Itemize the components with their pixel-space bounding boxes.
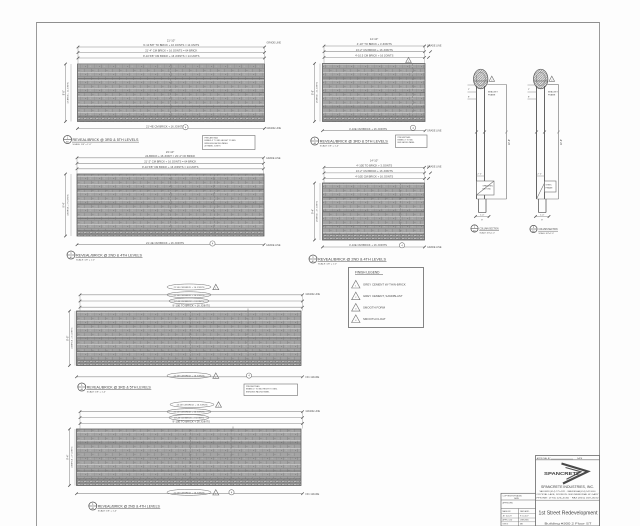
svg-text:VALDERS (414) 775-4121 · WAUKE: VALDERS (414) 775-4121 · WAUKESHA (414) … [540,490,596,493]
svg-text:GRADE LINE: GRADE LINE [427,166,442,169]
svg-text:2" 2": 2" 2" [478,174,482,176]
svg-text:16'-4E CM BRICK + 3 JOINTS: 16'-4E CM BRICK + 3 JOINTS [174,418,204,420]
svg-text:22'-8": 22'-8" [508,139,511,145]
svg-text:GRADE LINE: GRADE LINE [266,244,281,247]
svg-text:BRACKET: BRACKET [488,91,499,94]
svg-text:GRADE LINE: GRADE LINE [306,410,321,413]
svg-text:BRACKET: BRACKET [548,91,559,94]
svg-text:REVEAL/BRICK @ 3RD & 5TH LEVEL: REVEAL/BRICK @ 3RD & 5TH LEVELS [320,139,388,143]
svg-text:SCALE: 1/8" = 1'-0": SCALE: 1/8" = 1'-0" [98,510,117,513]
svg-text:GREY CEMENT W/ THIN-BRICK: GREY CEMENT W/ THIN-BRICK [363,282,406,286]
svg-text:4'-10" TO BRICK + 3 JOINTS: 4'-10" TO BRICK + 3 JOINTS [357,42,392,46]
svg-text:SMOOTH FLOAT: SMOOTH FLOAT [363,317,386,321]
svg-text:DATE: DATE [577,457,583,460]
svg-text:FRAME: FRAME [546,186,554,189]
svg-text:SMOOTH FORM: SMOOTH FORM [363,306,386,310]
svg-text:2": 2" [528,89,530,91]
svg-text:SCALE: 3/4"=1'-0": SCALE: 3/4"=1'-0" [539,232,555,235]
svg-text:9'-4": 9'-4" [66,455,69,460]
svg-text:GREY CEMENT, SANDBLAST: GREY CEMENT, SANDBLAST [363,294,403,298]
svg-text:13'-2" CM BRICK + 16 JOINTS: 13'-2" CM BRICK + 16 JOINTS [356,169,393,173]
svg-text:REVEAL/BRICK @ 2ND & 4TH LEVEL: REVEAL/BRICK @ 2ND & 4TH LEVELS [318,257,386,261]
svg-text:4'-10E CM BRICK + 16 JOINTS: 4'-10E CM BRICK + 16 JOINTS [355,175,393,179]
svg-text:BRINGING FACING PANEL: BRINGING FACING PANEL [205,142,229,145]
svg-text:21'-4E CM BRICK + 16 JOINTS: 21'-4E CM BRICK + 16 JOINTS [174,295,205,297]
svg-text:FRAME: FRAME [548,93,556,96]
svg-text:14'-10": 14'-10" [370,159,378,163]
svg-text:GRADE LINE: GRADE LINE [427,45,442,48]
svg-text:APPROVED: APPROVED [503,502,514,505]
svg-text:STEEL: STEEL [546,185,553,187]
svg-text:SCALE: 3/4"=1'-0": SCALE: 3/4"=1'-0" [480,231,496,234]
svg-text:1'-0": 1'-0" [540,214,544,216]
svg-text:FIN. GRADE: FIN. GRADE [306,493,320,496]
svg-text:CHECKED: CHECKED [520,519,529,521]
svg-text:4'-10E CM BRICK + 16 JOINTS: 4'-10E CM BRICK + 16 JOINTS [349,243,387,247]
svg-text:8": 8" [481,219,483,221]
svg-text:(28 BRICK + 27 JOINTS): (28 BRICK + 27 JOINTS) [72,446,74,468]
svg-text:SPANDREL: SPANDREL [483,185,495,188]
svg-text:GRADE LINE: GRADE LINE [266,157,281,160]
svg-text:BRINGING FACING PANEL: BRINGING FACING PANEL [246,390,270,393]
svg-text:APPROVAL BY: APPROVAL BY [537,457,551,460]
svg-text:21'-4E CM BRICK + 16 JOINTS: 21'-4E CM BRICK + 16 JOINTS [146,241,184,245]
svg-text:CRYSTAL LAKE, DIVISION: 3049 M: CRYSTAL LAKE, DIVISION: 3049 MEMORIAL W.… [537,493,600,496]
svg-text:REVEAL/BRICK @ 3RD & 5TH LEVEL: REVEAL/BRICK @ 3RD & 5TH LEVELS [87,385,151,389]
svg-text:8'-8": 8'-8" [311,90,314,95]
svg-text:4'-10E CM BRICK + 16 JOINTS: 4'-10E CM BRICK + 16 JOINTS [349,127,387,131]
svg-text:21'-10": 21'-10" [167,39,175,43]
svg-text:GRADE LINE: GRADE LINE [306,293,321,296]
svg-text:9'-10 5/8" CM BRICK + 16 JOINT: 9'-10 5/8" CM BRICK + 16 JOINTS = 14 UNI… [142,165,199,169]
svg-text:24'-4E CM BRICK + 16 JOINTS: 24'-4E CM BRICK + 16 JOINTS [177,405,208,407]
svg-text:21'-2" CM BRICK + 16 JOINTS =: 21'-2" CM BRICK + 16 JOINTS = 64 BRICK [144,159,196,163]
svg-text:Building #300 2 Floor ST: Building #300 2 Floor ST [545,521,592,525]
svg-text:9'-4": 9'-4" [311,209,314,214]
svg-text:14'-10": 14'-10" [370,37,378,41]
svg-text:REVEAL/BRICK @ 3RD & 5TH LEVEL: REVEAL/BRICK @ 3RD & 5TH LEVELS [73,138,139,142]
svg-text:GRADE LINE: GRADE LINE [427,246,442,249]
svg-text:21'-4E CM BRICK + 16 JOINTS: 21'-4E CM BRICK + 16 JOINTS [174,287,205,289]
svg-text:21'-4E CM BRICK + 16 JOINTS: 21'-4E CM BRICK + 16 JOINTS [174,376,205,378]
svg-text:1st Street Redevelopment: 1st Street Redevelopment [539,510,598,516]
svg-text:FIN. GRADE: FIN. GRADE [306,376,320,379]
svg-text:EMBED 4" TO MID HEIGHT TO BED.: EMBED 4" TO MID HEIGHT TO BED. [205,140,237,142]
svg-text:R: 10-6-97: R: 10-6-97 [520,516,529,518]
svg-text:2": 2" [468,89,470,91]
svg-text:COLUMN SECTION: COLUMN SECTION [539,227,558,231]
svg-text:(28 BRICK + 27 JOINTS): (28 BRICK + 27 JOINTS) [317,201,319,223]
svg-text:JE: 10-5-97: JE: 10-5-97 [503,516,512,518]
svg-text:GRADE LINE: GRADE LINE [427,130,442,133]
svg-text:9'-10 5/8" TO BRICK + 16 JOINT: 9'-10 5/8" TO BRICK + 16 JOINTS = 14 UNI… [143,43,199,47]
svg-text:(26 BRICK + 25 JOINTS): (26 BRICK + 25 JOINTS) [317,82,319,104]
svg-text:8": 8" [468,97,470,99]
svg-text:21'-4E CM BRICK + 16 JOINTS: 21'-4E CM BRICK + 16 JOINTS [146,125,184,129]
svg-text:STR B:: STR B: [503,524,509,526]
svg-text:REVEAL/BRICK @ 2ND & 4TH LEVEL: REVEAL/BRICK @ 2ND & 4TH LEVELS [76,253,142,257]
svg-text:COLUMN SECTION: COLUMN SECTION [480,227,499,231]
svg-text:GRADE LINE: GRADE LINE [267,42,282,45]
svg-text:PHONE: (773) 126-4130 · FAX (8: PHONE: (773) 126-4130 · FAX (815) 459-05… [537,496,599,499]
svg-text:8'-8": 8'-8" [62,90,65,95]
svg-text:MADE BY:: MADE BY: [503,510,512,513]
svg-text:SCALE: 1/8" = 1'-0": SCALE: 1/8" = 1'-0" [76,259,95,262]
svg-text:SCALE: 1/8" = 1'-0": SCALE: 1/8" = 1'-0" [320,145,339,148]
svg-text:FINISH LEGEND: FINISH LEGEND [355,271,380,275]
svg-text:GRADE LINE: GRADE LINE [267,127,282,130]
svg-text:8": 8" [528,97,530,99]
svg-text:13'-2" CM BRICK + 16 JOINTS: 13'-2" CM BRICK + 16 JOINTS [356,48,393,52]
svg-text:REVEAL/BRICK @ 2ND & 4TH LEVEL: REVEAL/BRICK @ 2ND & 4TH LEVELS [98,504,160,508]
svg-text:9'-10 5/8" CM BRICK + 16 JOINT: 9'-10 5/8" CM BRICK + 16 JOINTS = 14 UNI… [143,54,200,58]
svg-text:4'-10E TO BRICK + 3 JOINTS: 4'-10E TO BRICK + 3 JOINTS [356,163,392,167]
svg-text:PRECAST/SAG: PRECAST/SAG [246,385,260,388]
svg-text:PRECAST/SAG: PRECAST/SAG [398,136,411,139]
svg-text:BEYOND: BEYOND [483,188,492,190]
svg-text:8'-8": 8'-8" [66,336,69,341]
svg-text:21'-4E CM BRICK + 16 JOINTS: 21'-4E CM BRICK + 16 JOINTS [174,492,205,494]
svg-text:24-BRICK + 16 JOINT = 23'-4" O: 24-BRICK + 16 JOINT = 23'-4" OF BRICK [145,154,195,158]
svg-text:EMBED 4" TO MID HEIGHT TO BED.: EMBED 4" TO MID HEIGHT TO BED. [246,389,278,391]
svg-text:APPR. CKD: APPR. CKD [503,518,513,521]
svg-text:FRAME: FRAME [488,93,496,96]
svg-text:16'-4E CM BRICK + 3 JOINTS: 16'-4E CM BRICK + 3 JOINTS [174,301,204,303]
svg-text:(26 BRICK + 25 JOINTS): (26 BRICK + 25 JOINTS) [68,82,70,104]
svg-text:BED FACING PANEL: BED FACING PANEL [398,141,415,144]
svg-text:2" 2": 2" 2" [538,174,542,176]
svg-text:9'-10E TO BRICK + 16 JOINTS: 9'-10E TO BRICK + 16 JOINTS [173,420,211,424]
svg-text:9'-10E TO BRICK + 16 JOINTS: 9'-10E TO BRICK + 16 JOINTS [173,303,211,307]
svg-text:SCALE: 1/8" = 1'-0": SCALE: 1/8" = 1'-0" [73,143,92,146]
svg-text:(28 BRICK + 27 JOINTS): (28 BRICK + 27 JOINTS) [68,194,70,216]
svg-text:21'-4E CM BRICK + 16 JOINTS: 21'-4E CM BRICK + 16 JOINTS [174,412,205,414]
svg-text:SCALE: 1/8" = 1'-0": SCALE: 1/8" = 1'-0" [87,391,106,394]
svg-text:21'-4" CM BRICK + 16 JOINTS =: 21'-4" CM BRICK + 16 JOINTS = 64 BRICK [145,49,197,53]
svg-text:AT PANEL JOINTS: AT PANEL JOINTS [205,145,222,148]
svg-text:1'-0": 1'-0" [480,214,484,216]
svg-text:4'-10.5 CM BRICK + 16 JOINTS: 4'-10.5 CM BRICK + 16 JOINTS [355,54,394,58]
svg-text:8": 8" [541,219,543,221]
svg-text:SPANCRETE INDUSTRIES, INC.: SPANCRETE INDUSTRIES, INC. [541,485,594,489]
svg-text:COPYRIGHT/TRACED: COPYRIGHT/TRACED [503,494,523,497]
svg-text:PRECAST/SAG: PRECAST/SAG [205,137,219,140]
svg-text:DATE ARR:: DATE ARR: [520,510,530,513]
svg-text:9'-4": 9'-4" [62,202,65,207]
svg-text:(26 BRICK + 25 JOINTS): (26 BRICK + 25 JOINTS) [72,327,74,349]
svg-text:SPANCRETE: SPANCRETE [544,471,580,476]
svg-text:23'-10": 23'-10" [166,150,174,154]
svg-text:22'-8": 22'-8" [560,139,563,145]
svg-text:SCALE: 1/8" = 1'-0": SCALE: 1/8" = 1'-0" [318,263,337,266]
